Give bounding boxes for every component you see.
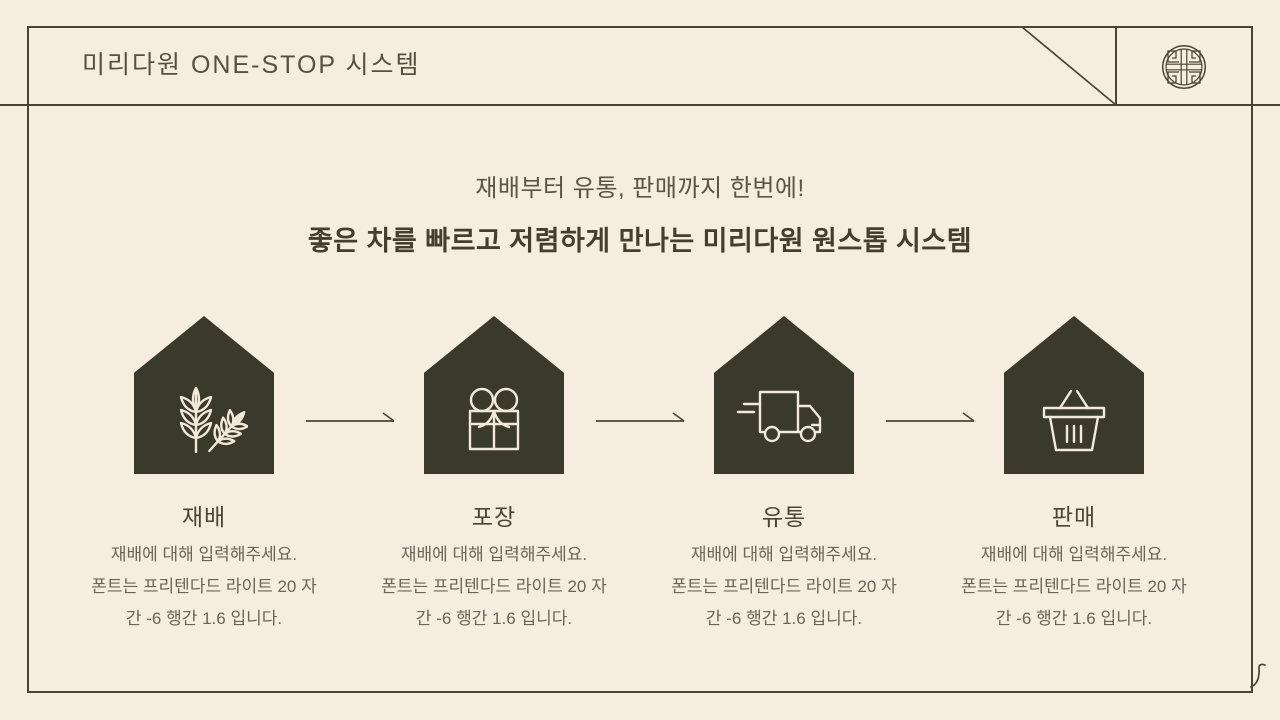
page-title: 미리다원 ONE-STOP 시스템: [82, 26, 421, 105]
desc-line: 재배에 대해 입력해주세요.: [59, 539, 349, 571]
desc-line: 재배에 대해 입력해주세요.: [349, 539, 639, 571]
house-shape: [714, 316, 854, 474]
desc-line: 간 -6 행간 1.6 입니다.: [59, 603, 349, 635]
arrow-right-icon: [885, 410, 975, 424]
intro-subtitle: 재배부터 유통, 판매까지 한번에!: [0, 168, 1280, 203]
arrow-right-icon: [595, 410, 685, 424]
desc-line: 폰트는 프리텐다드 라이트 20 자: [59, 571, 349, 603]
step-description: 재배에 대해 입력해주세요. 폰트는 프리텐다드 라이트 20 자 간 -6 행…: [639, 539, 929, 635]
traditional-medallion-icon: [1161, 44, 1207, 90]
desc-line: 폰트는 프리텐다드 라이트 20 자: [349, 571, 639, 603]
frame-curl-ornament: [1250, 662, 1268, 688]
desc-line: 재배에 대해 입력해주세요.: [639, 539, 929, 571]
desc-line: 간 -6 행간 1.6 입니다.: [929, 603, 1219, 635]
desc-line: 간 -6 행간 1.6 입니다.: [639, 603, 929, 635]
gift-icon: [450, 374, 538, 462]
house-shape: [1004, 316, 1144, 474]
step-description: 재배에 대해 입력해주세요. 폰트는 프리텐다드 라이트 20 자 간 -6 행…: [59, 539, 349, 635]
step-label: 판매: [929, 498, 1219, 532]
desc-line: 폰트는 프리텐다드 라이트 20 자: [929, 571, 1219, 603]
step-distribution: 유통 재배에 대해 입력해주세요. 폰트는 프리텐다드 라이트 20 자 간 -…: [639, 316, 929, 635]
delivery-truck-icon: [736, 374, 832, 458]
desc-line: 폰트는 프리텐다드 라이트 20 자: [639, 571, 929, 603]
desc-line: 간 -6 행간 1.6 입니다.: [349, 603, 639, 635]
step-packaging: 포장 재배에 대해 입력해주세요. 폰트는 프리텐다드 라이트 20 자 간 -…: [349, 316, 639, 635]
desc-line: 재배에 대해 입력해주세요.: [929, 539, 1219, 571]
wheat-icon: [160, 374, 248, 462]
step-cultivation: 재배 재배에 대해 입력해주세요. 폰트는 프리텐다드 라이트 20 자 간 -…: [59, 316, 349, 635]
step-description: 재배에 대해 입력해주세요. 폰트는 프리텐다드 라이트 20 자 간 -6 행…: [349, 539, 639, 635]
step-label: 유통: [639, 498, 929, 532]
house-shape: [424, 316, 564, 474]
step-label: 재배: [59, 498, 349, 532]
header-diagonal-line: [1022, 27, 1117, 106]
shopping-basket-icon: [1030, 374, 1118, 462]
house-shape: [134, 316, 274, 474]
step-label: 포장: [349, 498, 639, 532]
header-vertical-divider: [1115, 28, 1117, 105]
step-description: 재배에 대해 입력해주세요. 폰트는 프리텐다드 라이트 20 자 간 -6 행…: [929, 539, 1219, 635]
intro-title: 좋은 차를 빠르고 저렴하게 만나는 미리다원 원스톱 시스템: [0, 219, 1280, 258]
step-sales: 판매 재배에 대해 입력해주세요. 폰트는 프리텐다드 라이트 20 자 간 -…: [929, 316, 1219, 635]
intro-headline: 재배부터 유통, 판매까지 한번에! 좋은 차를 빠르고 저렴하게 만나는 미리…: [0, 168, 1280, 258]
arrow-right-icon: [305, 410, 395, 424]
